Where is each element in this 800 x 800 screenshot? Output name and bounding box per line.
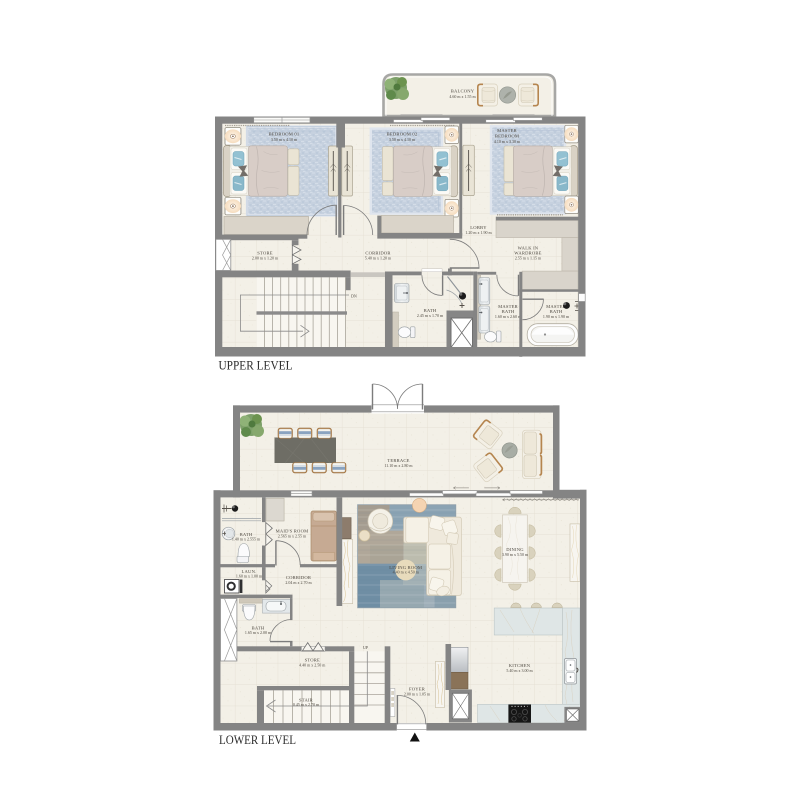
svg-text:1.90 m x 1.90 m: 1.90 m x 1.90 m [543, 314, 570, 319]
svg-text:1.20 m x 1.90 m: 1.20 m x 1.90 m [465, 230, 492, 235]
svg-text:BEDROOM: BEDROOM [495, 134, 519, 139]
svg-text:3.50 m x 4.10 m: 3.50 m x 4.10 m [271, 137, 298, 142]
svg-text:0.45 m x 2.70 m: 0.45 m x 2.70 m [293, 702, 320, 707]
svg-text:4.40 m x 2.50 m: 4.40 m x 2.50 m [299, 663, 326, 668]
svg-text:UP: UP [363, 645, 369, 650]
svg-text:3.90 m x 5.50 m: 3.90 m x 5.50 m [502, 552, 529, 557]
svg-text:11.10 m x 2.80 m: 11.10 m x 2.80 m [384, 463, 413, 468]
svg-text:4.40 m x 4.50 m: 4.40 m x 4.50 m [393, 570, 420, 575]
svg-text:BEDROOM 02: BEDROOM 02 [387, 132, 418, 137]
svg-text:2.04 m x 2.70 m: 2.04 m x 2.70 m [285, 580, 312, 585]
svg-text:2.00 m x 1.20 m: 2.00 m x 1.20 m [252, 256, 279, 261]
svg-text:LOWER LEVEL: LOWER LEVEL [219, 733, 296, 747]
svg-text:1.40 m x 2.555 m: 1.40 m x 2.555 m [232, 537, 261, 542]
svg-text:1.60 m x 2.60 m: 1.60 m x 2.60 m [495, 314, 522, 319]
svg-text:BEDROOM 01: BEDROOM 01 [269, 132, 300, 137]
svg-text:DN: DN [351, 293, 357, 298]
svg-text:2.55 m x 1.15 m: 2.55 m x 1.15 m [515, 256, 542, 261]
svg-text:UPPER LEVEL: UPPER LEVEL [219, 358, 293, 372]
svg-text:1.65 m x 2.00 m: 1.65 m x 2.00 m [245, 630, 272, 635]
svg-text:3.50 m x 4.10 m: 3.50 m x 4.10 m [389, 137, 416, 142]
svg-text:2.565 m x 2.55 m: 2.565 m x 2.55 m [278, 534, 307, 539]
svg-text:BALCONY: BALCONY [451, 89, 475, 94]
svg-text:2.00 m x 1.05 m: 2.00 m x 1.05 m [404, 692, 431, 697]
svg-text:5.40 m x 3.00 m: 5.40 m x 3.00 m [506, 668, 533, 673]
svg-text:4.60 m x 1.55 m: 4.60 m x 1.55 m [449, 94, 476, 99]
svg-text:2.45 m x 1.70 m: 2.45 m x 1.70 m [417, 313, 444, 318]
svg-text:4.10 m x 3.30 m: 4.10 m x 3.30 m [494, 139, 521, 144]
svg-text:5.40 m x 1.20 m: 5.40 m x 1.20 m [365, 256, 392, 261]
svg-text:1.60 m x 1.00 m: 1.60 m x 1.00 m [236, 574, 263, 579]
svg-text:MASTER: MASTER [497, 128, 518, 133]
